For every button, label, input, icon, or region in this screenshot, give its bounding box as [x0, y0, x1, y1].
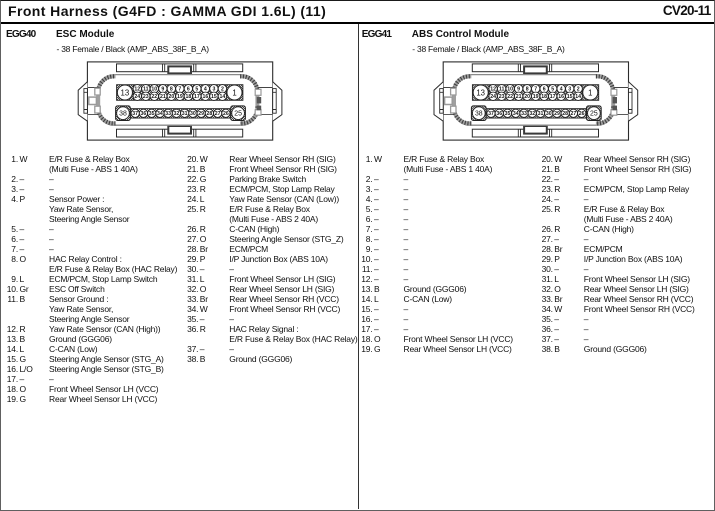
- svg-text:14: 14: [220, 94, 226, 100]
- svg-text:33: 33: [165, 111, 171, 117]
- svg-text:35: 35: [149, 111, 155, 117]
- svg-text:30: 30: [190, 111, 196, 117]
- svg-text:34: 34: [157, 111, 163, 117]
- svg-text:32: 32: [174, 111, 180, 117]
- svg-text:16: 16: [202, 94, 208, 100]
- svg-text:19: 19: [177, 94, 183, 100]
- svg-text:18: 18: [185, 94, 191, 100]
- svg-text:31: 31: [182, 111, 188, 117]
- svg-text:29: 29: [198, 111, 204, 117]
- svg-text:21: 21: [160, 94, 166, 100]
- svg-text:1: 1: [232, 88, 236, 97]
- svg-text:28: 28: [207, 111, 213, 117]
- svg-text:25: 25: [234, 111, 242, 118]
- svg-text:37: 37: [132, 111, 138, 117]
- svg-text:15: 15: [211, 94, 217, 100]
- svg-text:24: 24: [134, 94, 140, 100]
- svg-text:26: 26: [223, 111, 229, 117]
- svg-text:20: 20: [168, 94, 174, 100]
- svg-text:13: 13: [121, 88, 130, 97]
- svg-text:36: 36: [141, 111, 147, 117]
- svg-text:17: 17: [194, 94, 200, 100]
- svg-text:38: 38: [119, 111, 127, 118]
- svg-text:23: 23: [143, 94, 149, 100]
- svg-text:27: 27: [215, 111, 221, 117]
- svg-text:22: 22: [151, 94, 157, 100]
